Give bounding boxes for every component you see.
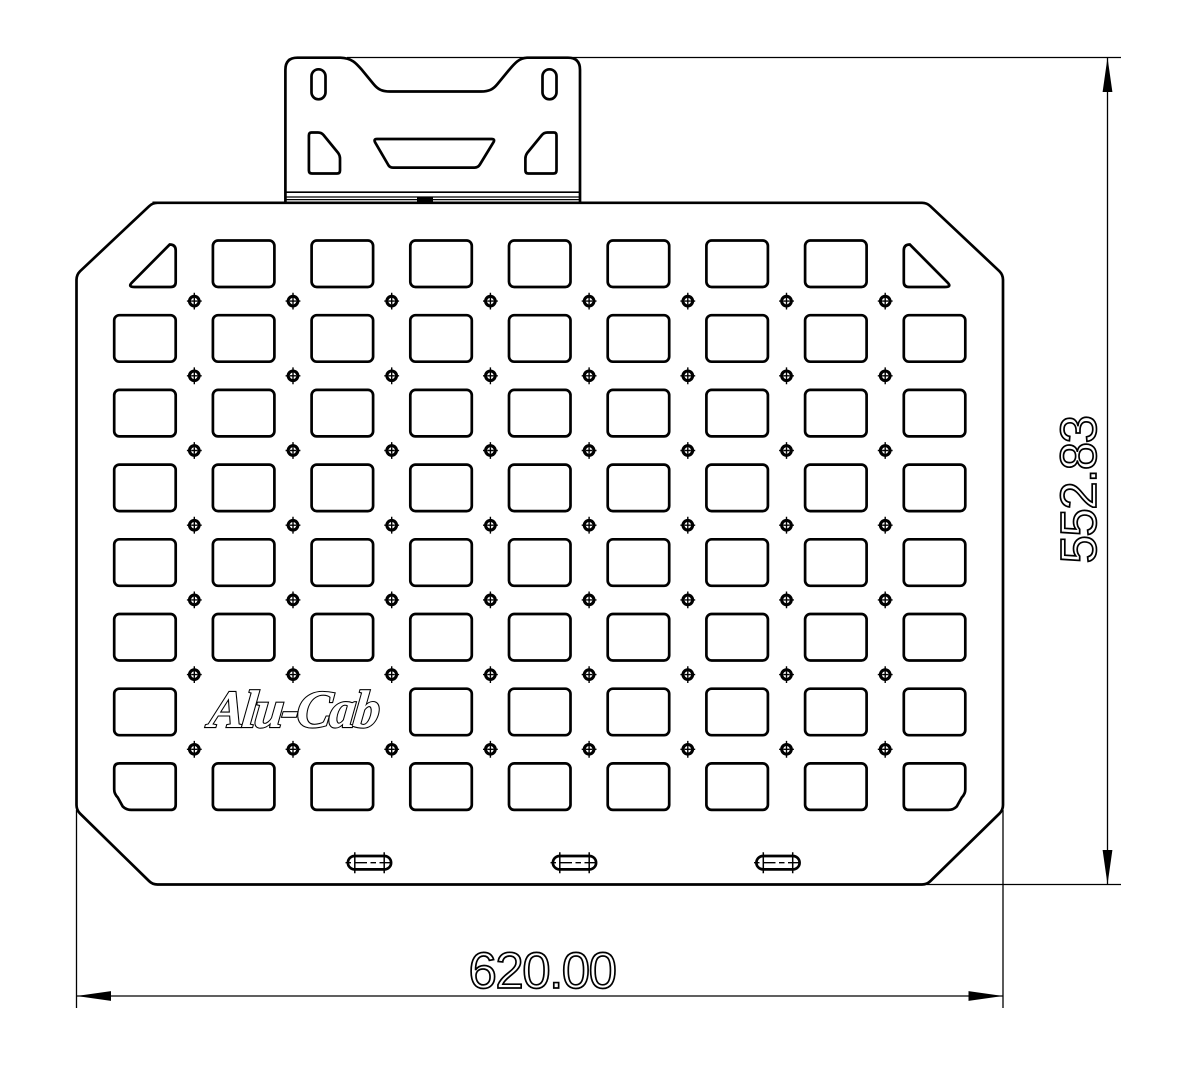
svg-text:620.00: 620.00 <box>469 942 616 999</box>
svg-text:552.83: 552.83 <box>1050 416 1107 563</box>
svg-text:Alu-Cab: Alu-Cab <box>204 681 382 739</box>
